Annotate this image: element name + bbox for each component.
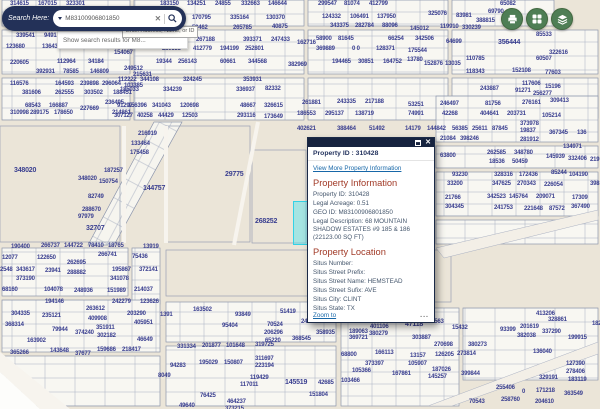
parcel-label: 51492 [369,126,385,132]
parcel-label: 273814 [457,351,476,357]
parcel-label: 127390 [566,361,585,367]
parcel-label: 367490 [571,204,590,210]
parcel-label: 332406 [568,156,587,162]
parcel-label: 334239 [163,87,182,93]
parcel-label: 372141 [139,267,158,273]
parcel-label: 171218 [536,388,555,394]
parcel-label: 335164 [230,15,249,21]
grid-icon [532,14,542,24]
parcel-map-viewer: 3146151670153233011831501342512485533266… [0,0,600,409]
parcel-label: 328861 [548,317,567,323]
parcel-label: 117011 [240,382,258,388]
parcel-label: 282784 [355,23,374,29]
parcel-label: 402621 [297,126,316,132]
parcel-label: 243887 [480,86,499,92]
parcel-label: 25611 [472,126,487,132]
parcel-label: 143648 [50,348,69,354]
parcel-label: 117606 [522,81,541,87]
parcel-label: 85533 [536,32,552,38]
parcel-label: 412779 [193,46,212,52]
parcel-label: 68160 [2,287,18,293]
parcel-label: 51419 [280,309,296,315]
parcel-label: 266741 [98,252,117,258]
parcel-label: 53251 [408,102,424,108]
parcel-label: 239898 [80,81,99,87]
parcel-label: 151804 [309,392,328,398]
parcel-label: 235121 [42,313,61,319]
parcel-label: 82749 [88,194,104,200]
popup-field: GEO ID: M83100906801850 [308,208,434,217]
parcel-label: 68543 [25,103,41,109]
parcel-label: 87845 [492,126,508,132]
parcel-label: 270343 [517,181,536,187]
parcel-label: 368314 [5,322,24,328]
parcel-label: 13919 [143,244,159,250]
parcel-label: 118343 [466,69,485,75]
parcel-label: 14179 [405,126,421,132]
parcel-label: 122650 [37,255,56,261]
parcel-label: 337290 [542,329,561,335]
view-more-link[interactable]: View More Property Information [308,161,434,173]
parcel-label: 373397 [365,361,384,367]
print-button[interactable] [501,8,523,30]
popup-field: Legal Acreage: 0.51 [308,199,434,208]
parcel-label: 91271 [515,88,531,94]
parcel-label: 398246 [460,136,479,142]
parcel-label: 40875 [272,24,288,30]
parcel-label: 367345 [549,130,568,136]
parcel-label: 144722 [64,243,83,249]
parcel-label: 12077 [2,255,18,261]
more-options-button[interactable]: ... [420,312,429,319]
basemap-gallery-button[interactable] [526,8,548,30]
parcel-label: 58900 [316,36,332,42]
parcel-label: 194199 [220,46,239,52]
parcel-label: 37677 [75,351,91,357]
parcel-label: 12503 [182,113,198,119]
parcel-label: 356444 [498,40,520,46]
parcel-label: 342523 [487,194,506,200]
parcel-label: 60661 [220,59,236,65]
parcel-label: 95404 [222,323,238,329]
parcel-label: 262695 [67,260,86,266]
parcel-label: 344108 [140,77,159,83]
parcel-label: 203290 [127,311,146,317]
parcel-label: 263612 [86,306,105,312]
parcel-label: 78585 [63,69,79,75]
zoom-to-link[interactable]: Zoom to [313,312,336,319]
parcel-label: 413206 [536,311,555,317]
search-bar[interactable]: Search Here: ✕ [2,6,186,31]
popup-footer: Zoom to ... [308,311,434,322]
parcel-label: 34184 [88,59,104,65]
parcel-label: 304345 [445,204,464,210]
parcel-label: 136 [577,130,586,136]
popup-title: Property ID : 310428 [308,147,434,161]
parcel-label: 164752 [383,59,402,65]
parcel-label: 120698 [180,103,199,109]
parcel-label: 112222 [118,77,137,83]
parcel-label: 13157 [410,353,426,359]
parcel-label: 392931 [36,69,55,75]
parcel-label: 227669 [80,106,99,112]
parcel-label: 145257 [428,374,447,380]
parcel-label: 137950 [377,14,396,20]
parcel-label: 75436 [132,254,148,260]
parcel-label: 94283 [170,363,186,369]
parcel-label: 365266 [10,350,29,356]
parcel-label: 105366 [352,368,371,374]
parcel-label: 268252 [255,219,277,225]
parcel-label: 242279 [112,299,131,305]
parcel-label: 17309 [572,195,588,201]
parcel-label: 163502 [193,307,212,313]
parcel-label: 178650 [54,110,73,116]
parcel-label: 145519 [285,380,307,386]
parcel-label: 341078 [110,276,129,282]
popup-field: Situs Street Prefix: [308,268,434,277]
parcel-label: 103466 [341,378,360,384]
parcel-label: 81074 [344,1,360,7]
parcel-label: 288670 [82,207,101,213]
parcel-label: 8049 [158,373,171,379]
parcel-label: 344568 [248,59,267,65]
parcel-label: 358935 [316,330,335,336]
parcel-label: 134971 [563,144,582,150]
parcel-label: 93849 [235,312,251,318]
parcel-label: 209071 [536,194,555,200]
parcel-label: 116576 [10,81,29,87]
parcel-label: 15196 [545,84,561,90]
parcel-label: 348780 [514,150,533,156]
parcel-label: 289175 [30,110,49,116]
parcel-label: 46649 [137,337,153,343]
parcel-label: 9491 [44,33,57,39]
parcel-label: 159686 [97,347,116,353]
parcel-label: 341043 [152,103,171,109]
parcel-label: 326615 [264,103,283,109]
parcel-label: 276161 [522,100,541,106]
parcel-label: 343617 [16,267,35,273]
parcel-label: 77603 [545,70,561,76]
parcel-label: 93399 [500,327,516,333]
parcel-label: 136040 [533,349,552,355]
search-icon[interactable] [168,14,177,23]
parcel-label: 399844 [461,371,480,377]
parcel-label: 101648 [226,343,245,349]
parcel-label: 203731 [507,111,526,117]
parcel-label: 199915 [568,335,587,341]
parcel-label: 270698 [434,342,453,348]
parcel-label: 299547 [318,1,337,7]
parcel-label: 152876 [424,61,443,67]
parcel-label: 265785 [233,25,252,31]
parcel-label: 347625 [492,181,511,187]
parcel-label: 309413 [550,98,569,104]
parcel-label: 336937 [236,87,255,93]
parcel-label: 206296 [264,330,283,336]
parcel-label: 190400 [11,244,30,250]
parcel-label: 0 [522,389,525,395]
parcel-label: 369721 [349,335,368,341]
parcel-label: 186553 [297,111,316,117]
parcel-label: 201619 [520,324,539,330]
parcel-label: 204610 [535,399,554,405]
parcel-label: 382038 [517,333,536,339]
parcel-label: 201877 [202,343,221,349]
parcel-label: 152108 [512,68,531,74]
parcel-label: 353931 [243,77,262,83]
parcel-label: 105214 [542,113,561,119]
parcel-label: 295137 [325,111,344,117]
parcel-label: 256277 [533,91,552,97]
parcel-label: 393371 [243,37,262,43]
parcel-label: 343375 [330,23,349,29]
parcel-label: 218417 [122,347,141,353]
parcel-label: 97979 [78,214,94,220]
parcel-label: 185033 [120,87,139,93]
parcel-label: 79944 [52,327,68,333]
parcel-label: 128371 [376,46,395,52]
popup-header[interactable]: ✕ [308,138,434,147]
parcel-label: 123680 [6,44,25,50]
popup-section-heading: Property Location [308,242,434,259]
parcel-label: 255406 [496,385,515,391]
parcel-label: 262555 [55,90,74,96]
parcel-label: 256143 [178,59,197,65]
parcel-label: 145939 [546,154,565,160]
parcel-label: 81756 [485,101,501,107]
parcel-label: 187026 [432,367,451,373]
popup-section-heading: Property Information [308,173,434,190]
parcel-label: 49640 [179,403,195,409]
parcel-label: 293116 [237,113,256,119]
parcel-label: 144757 [143,186,165,192]
parcel-label: 342506 [415,36,434,42]
parcel-label: 194146 [45,299,64,305]
parcel-label: 65082 [500,1,516,7]
parcel-label: 223194 [255,363,274,369]
parcel-label: 104078 [44,287,63,293]
parcel-label: 13035 [445,61,461,67]
parcel-label: 163902 [27,338,46,344]
parcel-label: 30851 [358,59,374,65]
parcel-label: 307127 [114,113,133,119]
parcel-label: 74991 [408,111,424,117]
parcel-label: 15432 [452,325,468,331]
parcel-label: 24855 [215,1,231,7]
search-input-pill[interactable]: ✕ [53,10,182,27]
parcel-label: 248936 [74,288,93,294]
parcel-label: 42685 [318,380,334,386]
parcel-label: 18536 [489,159,505,165]
parcel-label: 66254 [388,36,404,42]
parcel-label: 246497 [440,101,459,107]
parcel-label: 219 [590,157,599,163]
parcel-label: 241753 [494,205,513,211]
close-icon[interactable]: ✕ [425,139,431,146]
parcel-label: 195029 [199,360,218,366]
parcel-label: 404641 [480,111,499,117]
parcel-label: 154067 [114,50,133,56]
parcel-label: 243335 [337,99,356,105]
parcel-label: 195867 [112,267,131,273]
parcel-label: 266737 [41,243,60,249]
parcel-label: 19344 [156,59,172,65]
parcel-label: 56385 [452,126,468,132]
parcel-label: 119910 [440,24,459,30]
parcel-label: 119429 [250,375,269,381]
parcel-label: 328316 [494,172,513,178]
parcel-label: 374240 [75,330,94,336]
parcel-label: 18765 [108,243,124,249]
parcel-label: 247433 [271,37,290,43]
parcel-label: 2548 [0,267,13,273]
parcel-label: 331334 [177,344,196,350]
printer-icon [507,14,518,25]
parcel-label: 311697 [255,356,274,362]
parcel-label: 21766 [445,195,461,201]
parcel-label: 173649 [264,114,283,120]
parcel-label: 194465 [332,59,351,65]
popup-field: Legal Description: 68 MOUNTAIN SHADOW ES… [308,217,434,242]
parcel-label: 368545 [292,336,311,342]
parcel-label: 310998 [10,110,29,116]
parcel-label: 380273 [468,342,487,348]
parcel-label: 351911 [96,325,115,331]
parcel-label: 156396 [128,103,147,109]
parcel-label: 33200 [447,181,463,187]
popup-field: Property ID: 310428 [308,190,434,199]
parcel-label: 220605 [10,60,29,66]
parcel-label: 278406 [566,369,585,375]
parcel-label: 130370 [266,15,285,21]
layers-button[interactable] [551,8,573,30]
parcel-label: 29775 [225,172,243,178]
parcel-label: 373978 [520,121,539,127]
parcel-label: 144842 [427,126,446,132]
parcel-label: 70524 [267,322,283,328]
parcel-label: 1391 [160,312,173,318]
parcel-label: 78410 [88,243,104,249]
parcel-label: 23941 [45,268,61,274]
parcel-label: 82332 [265,86,281,92]
parcel-label: 303502 [84,90,103,96]
parcel-label: 388464 [337,126,356,132]
parcel-label: 302182 [97,333,116,339]
parcel-label: 93230 [452,172,468,178]
parcel-label: 288882 [67,270,86,276]
parcel-label: 134251 [187,1,206,7]
parcel-label: 339541 [16,33,35,39]
parcel-label: 221648 [524,206,543,212]
parcel-label: 388815 [476,18,495,24]
parcel-label: 258760 [501,397,520,403]
parcel-label: 63800 [440,153,456,159]
parcel-label: 381606 [22,90,41,96]
divider [164,14,165,24]
search-label: Search Here: [8,15,49,22]
parcel-label: 110785 [466,56,485,62]
popup-field: Situs Street Sufix: AVE [308,286,434,295]
parcel-label: 216919 [138,131,157,137]
parcel-label: 13780 [407,57,423,63]
parcel-label: 124332 [322,14,341,20]
parcel-label: 175458 [130,150,149,156]
parcel-label: 348020 [78,176,97,182]
parcel-label: 138719 [355,111,374,117]
parcel-label: 267188 [196,37,215,43]
parcel-label: 19837 [520,128,536,134]
parcel-label: 88096 [382,23,398,29]
parcel-label: 261881 [302,100,321,106]
parcel-label: 42268 [442,111,458,117]
clear-icon[interactable]: ✕ [155,15,161,22]
chevron-down-icon[interactable] [58,17,62,20]
parcel-label: 380279 [369,331,388,337]
search-input[interactable] [65,15,151,22]
parcel-label: 106491 [350,14,369,20]
parcel-label: 40258 [137,113,153,119]
parcel-label: 48667 [240,103,256,109]
parcel-label: 64699 [446,39,462,45]
parcel-label: 32707 [86,226,104,232]
popup-body: View More Property Information Property … [308,161,434,311]
parcel-label: 123626 [140,299,159,305]
parcel-label: 60507 [536,56,552,62]
parcel-label: 162716 [297,40,316,46]
parcel-label: 81645 [338,36,354,42]
parcel-label: 252801 [245,46,264,52]
parcel-label: 76425 [200,393,216,399]
parcel-label: 151989 [107,288,126,294]
parcel-label: 105907 [408,361,427,367]
parcel-label: 166113 [375,350,394,356]
parcel-label: 281912 [520,137,539,143]
popup-field: Situs Number: [308,259,434,268]
parcel-label: 85244 [551,170,567,176]
parcel-label: 262585 [487,150,506,156]
parcel-label: 382969 [288,62,307,68]
parcel-label: 369889 [316,46,335,52]
parcel-label: 183119 [568,377,587,383]
parcel-label: 70543 [469,399,485,405]
dock-icon[interactable] [415,140,421,146]
parcel-label: 150754 [99,179,118,185]
parcel-label: 324245 [183,77,202,83]
parcel-label: 405951 [134,320,153,326]
parcel-label: 332663 [241,1,260,7]
parcel-label: 348020 [14,168,36,174]
parcel-label: 304335 [11,311,30,317]
popup-field: Situs State: TX [308,304,434,311]
parcel-label: 330239 [462,25,481,31]
parcel-label: 464237 [227,399,246,405]
popup-field: Situs Street Name: HEMSTEAD [308,277,434,286]
parcel-label: 44429 [158,113,174,119]
parcel-label: 187257 [104,168,123,174]
parcel-label: 146644 [268,1,287,7]
parcel-label: 214037 [134,287,153,293]
parcel-label: 170795 [192,15,211,21]
parcel-label: 182 [592,321,600,327]
parcel-label: 319725 [255,342,274,348]
parcel-label: 175544 [408,48,427,54]
parcel-label: 172436 [519,172,538,178]
property-popup: ✕ Property ID : 310428 View More Propert… [307,137,435,323]
parcel-label: 329191 [539,375,558,381]
parcel-label: 164593 [55,81,74,87]
